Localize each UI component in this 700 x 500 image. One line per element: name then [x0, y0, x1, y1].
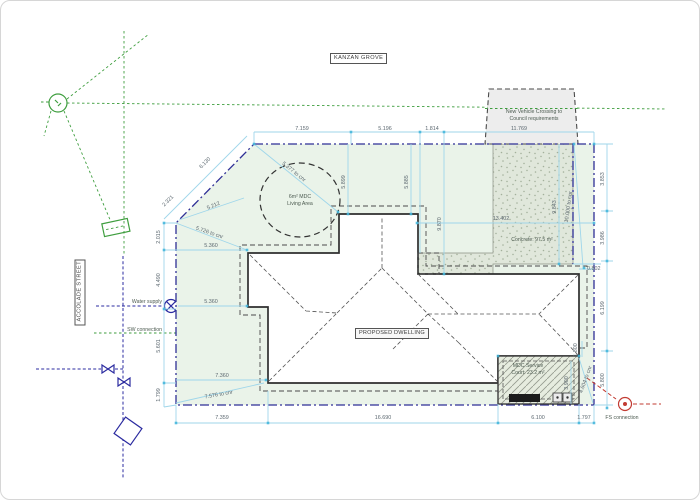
dimension-label: 5.800 [600, 373, 606, 387]
street-services-blue [36, 256, 178, 479]
sw-connection-label: SW connection [127, 327, 162, 333]
fs-connection-label: FS connection [605, 415, 638, 421]
dimension-label: 1.800 [573, 343, 579, 357]
bin-symbol [509, 394, 540, 402]
dimension-label: 5.196 [378, 126, 392, 132]
dimension-label: 2.321 [161, 194, 175, 208]
living-area-label: 6m² MDC [289, 194, 311, 200]
service-court-label: Court: 23.2 m² [511, 370, 544, 376]
dimension-label: 5.899 [341, 175, 347, 189]
dimension-label: 9.870 [437, 217, 443, 231]
dimension-label: 7.360 [215, 373, 229, 379]
dimension-label: 9.843 [552, 200, 558, 214]
dimension-label: 7.359 [215, 415, 229, 421]
concrete-label: Concrete: 97.5 m² [511, 237, 553, 243]
dimension-label: 16.690 [375, 415, 392, 421]
street-label-accolade-street: ACCOLADE STREET [75, 260, 86, 326]
service-court-label: MDC Service [513, 363, 544, 369]
living-area-label: Living Area [287, 201, 313, 207]
dimension-label: 6.100 [531, 415, 545, 421]
valve-symbol [102, 365, 130, 386]
dimension-label: 3.986 [600, 231, 606, 245]
dimension-label: 3.900 [564, 376, 570, 390]
site-plan-drawing: 7.159 5.196 1.814 11.769 6.130 2.321 2.0… [1, 1, 700, 500]
dimension-label: 5.601 [156, 339, 162, 353]
dimension-label: 5.360 [204, 299, 218, 305]
dimension-label: 1.797 [577, 415, 591, 421]
dimension-label: 4.490 [156, 273, 162, 287]
proposed-dwelling-label: PROPOSED DWELLING [355, 328, 429, 339]
utility-box-symbol [102, 218, 130, 236]
dimension-label: 1.799 [156, 388, 162, 402]
vehicle-crossing-label: Council requirements [509, 116, 558, 122]
dimension-label: 5.360 [204, 243, 218, 249]
dimension-label: 0.802 [587, 266, 601, 272]
site-plan-page: 7.159 5.196 1.814 11.769 6.130 2.321 2.0… [0, 0, 700, 500]
water-supply-label: Water supply [132, 299, 162, 305]
dimension-label: 6.199 [600, 301, 606, 315]
dimension-label: 5.885 [404, 175, 410, 189]
dimension-label: 11.769 [511, 126, 527, 132]
vehicle-crossing-label: New Vehicle Crossing to [506, 109, 562, 115]
dimension-label: 1.814 [425, 126, 439, 132]
hydrant-symbol [114, 417, 142, 445]
dimension-label: 2.015 [156, 230, 162, 244]
street-label-kanzan-grove: KANZAN GROVE [330, 53, 387, 64]
dimension-label: 6.130 [198, 156, 212, 170]
fs-connection [587, 378, 661, 411]
dimension-label: 13.402 [493, 216, 510, 222]
dimension-label: 7.159 [295, 126, 309, 132]
dimension-label: 3.853 [600, 172, 606, 186]
